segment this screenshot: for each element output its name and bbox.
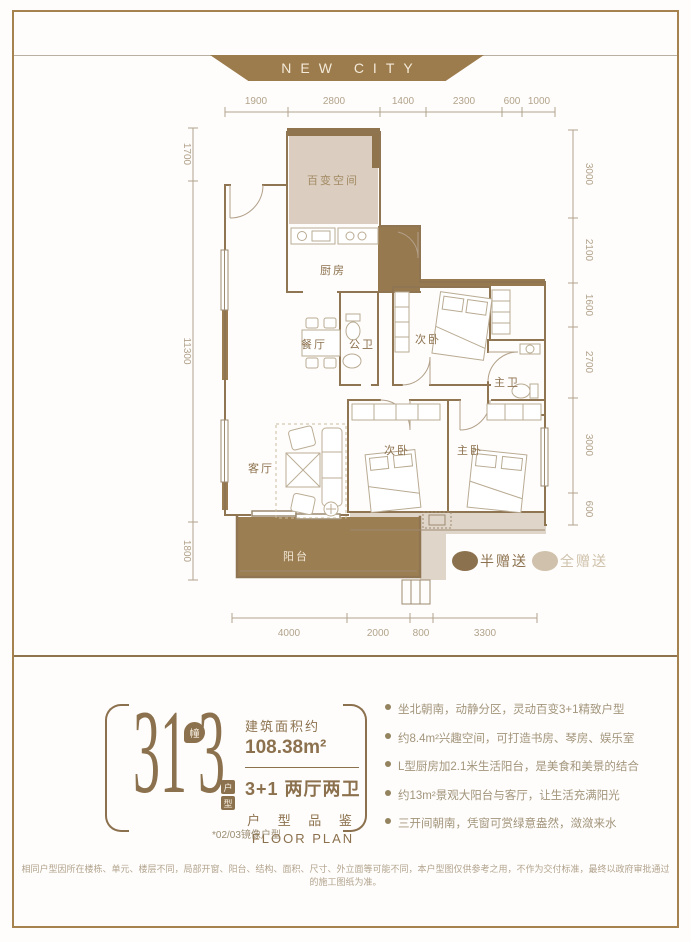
feature-item: 坐北朝南，动静分区，灵动百变3+1精致户型 bbox=[385, 701, 667, 717]
legend-fullgift-label: 全赠送 bbox=[560, 553, 608, 569]
feature-item: 约8.4m²兴趣空间，可打造书房、琴房、娱乐室 bbox=[385, 730, 667, 746]
room-label-bedroom2: 次卧 bbox=[415, 332, 441, 346]
room-label-flex-space: 百变空间 bbox=[307, 173, 359, 187]
svg-text:3300: 3300 bbox=[474, 628, 497, 639]
room-label-guest-bath: 公卫 bbox=[349, 339, 375, 351]
feature-item: L型厨房加2.1米生活阳台，是美食和美景的结合 bbox=[385, 758, 667, 774]
svg-text:4000: 4000 bbox=[278, 628, 301, 639]
building-number: 31 bbox=[133, 692, 187, 812]
info-rule bbox=[245, 767, 359, 768]
feature-item: 三开间朝南，凭窗可赏绿意盎然，潋潋来水 bbox=[385, 815, 667, 831]
svg-text:1700: 1700 bbox=[181, 143, 192, 166]
svg-text:1000: 1000 bbox=[528, 96, 551, 107]
room-label-living: 客厅 bbox=[248, 461, 274, 475]
unit-info-block: 31 幢 3 户 型 建筑面积约 108.38m² 3+1 两厅两卫 户 型 品… bbox=[105, 700, 367, 836]
svg-text:2100: 2100 bbox=[583, 239, 594, 262]
room-label-master-bedroom: 主卧 bbox=[457, 444, 483, 457]
svg-text:1400: 1400 bbox=[392, 96, 415, 107]
mirror-note: *02/03镜像户型 bbox=[212, 826, 281, 841]
room-label-balcony: 阳台 bbox=[283, 549, 309, 563]
svg-text:600: 600 bbox=[583, 501, 594, 518]
disclaimer: 相同户型因所在楼栋、单元、楼层不同，局部开窗、阳台、结构、面积、尺寸、外立面等可… bbox=[18, 862, 673, 888]
feature-list: 坐北朝南，动静分区，灵动百变3+1精致户型 约8.4m²兴趣空间，可打造书房、琴… bbox=[385, 701, 667, 844]
sofa bbox=[322, 428, 342, 506]
layout-label: 3+1 两厅两卫 bbox=[245, 775, 361, 801]
svg-text:11300: 11300 bbox=[181, 337, 192, 365]
area-label: 建筑面积约 bbox=[245, 716, 361, 735]
svg-text:600: 600 bbox=[504, 96, 521, 107]
svg-text:2300: 2300 bbox=[453, 96, 476, 107]
legend-halfgift-label: 半赠送 bbox=[480, 553, 528, 569]
feature-item: 约13m²景观大阳台与客厅，让生活充满阳光 bbox=[385, 787, 667, 803]
decor-bracket-left bbox=[105, 704, 129, 832]
svg-text:2000: 2000 bbox=[367, 628, 390, 639]
svg-text:800: 800 bbox=[413, 628, 430, 639]
bullet-dot-icon bbox=[385, 761, 391, 767]
unit-suffix: 户 型 bbox=[221, 780, 235, 810]
floorplan-poster: NEW CITY bbox=[0, 0, 691, 942]
floor-plan: 百变空间 厨房 餐厅 公卫 次卧 主卫 客厅 次卧 主卧 阳台 1900 280… bbox=[0, 0, 691, 660]
bullet-dot-icon bbox=[385, 733, 391, 739]
svg-text:1600: 1600 bbox=[583, 294, 594, 317]
legend-halfgift-dot bbox=[452, 551, 478, 571]
area-value: 108.38m² bbox=[245, 737, 361, 759]
kitchen-balcony-halfgift bbox=[378, 226, 420, 292]
balcony-halfgift bbox=[237, 517, 420, 577]
room-label-bedroom3: 次卧 bbox=[384, 443, 410, 457]
bedroom3-bed bbox=[365, 450, 421, 513]
svg-text:3000: 3000 bbox=[583, 434, 594, 457]
entry-door bbox=[230, 185, 263, 218]
room-label-master-bath: 主卫 bbox=[494, 376, 520, 389]
master-bed bbox=[467, 449, 527, 512]
room-label-dining: 餐厅 bbox=[301, 337, 327, 351]
bullet-dot-icon bbox=[385, 704, 391, 710]
kitchen-counter bbox=[291, 228, 378, 244]
bedroom2-bed bbox=[432, 292, 492, 361]
room-label-kitchen: 厨房 bbox=[320, 264, 346, 277]
svg-text:1900: 1900 bbox=[245, 96, 268, 107]
svg-text:2800: 2800 bbox=[323, 96, 346, 107]
living-furniture bbox=[276, 424, 346, 518]
svg-text:3000: 3000 bbox=[583, 163, 594, 186]
legend-fullgift-dot bbox=[532, 551, 558, 571]
bullet-dot-icon bbox=[385, 818, 391, 824]
section-divider bbox=[14, 655, 677, 657]
svg-text:2700: 2700 bbox=[583, 351, 594, 374]
bullet-dot-icon bbox=[385, 790, 391, 796]
svg-text:1800: 1800 bbox=[181, 540, 192, 563]
plan-legend: 半赠送 全赠送 bbox=[452, 551, 608, 571]
